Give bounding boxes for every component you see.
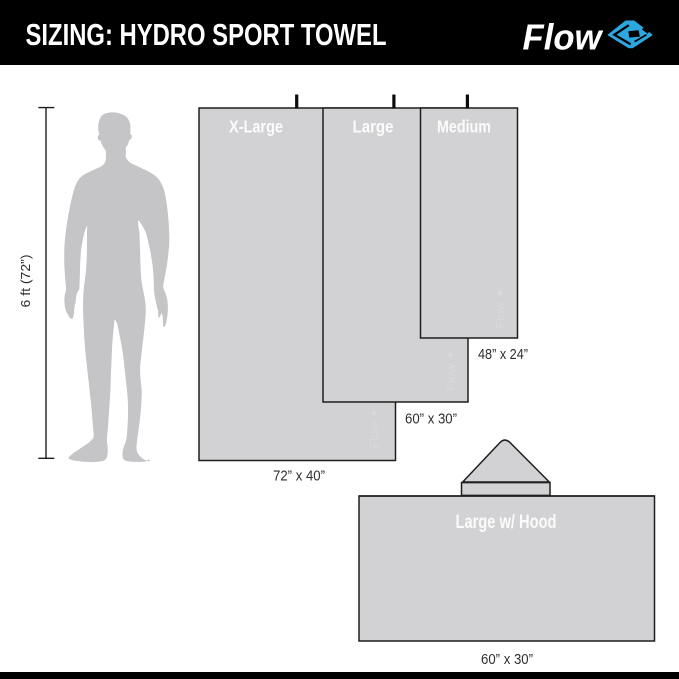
svg-text:Medium: Medium: [437, 117, 491, 137]
svg-text:X-Large: X-Large: [229, 117, 283, 137]
svg-text:60” x 30”: 60” x 30”: [481, 652, 533, 668]
svg-text:60” x 30”: 60” x 30”: [405, 412, 457, 428]
svg-text:SIZING: HYDRO SPORT TOWEL: SIZING: HYDRO SPORT TOWEL: [26, 18, 387, 52]
svg-text:Flow ✦: Flow ✦: [494, 288, 508, 329]
svg-text:Large w/ Hood: Large w/ Hood: [456, 512, 557, 533]
svg-text:Large: Large: [353, 117, 394, 137]
svg-text:48” x 24”: 48” x 24”: [478, 347, 528, 363]
svg-text:Flow ✦: Flow ✦: [444, 350, 458, 391]
svg-text:72” x 40”: 72” x 40”: [273, 469, 325, 485]
svg-text:6 ft (72”): 6 ft (72”): [18, 255, 33, 308]
svg-text:Flow: Flow: [523, 17, 604, 58]
svg-text:Flow ✦: Flow ✦: [368, 408, 382, 449]
